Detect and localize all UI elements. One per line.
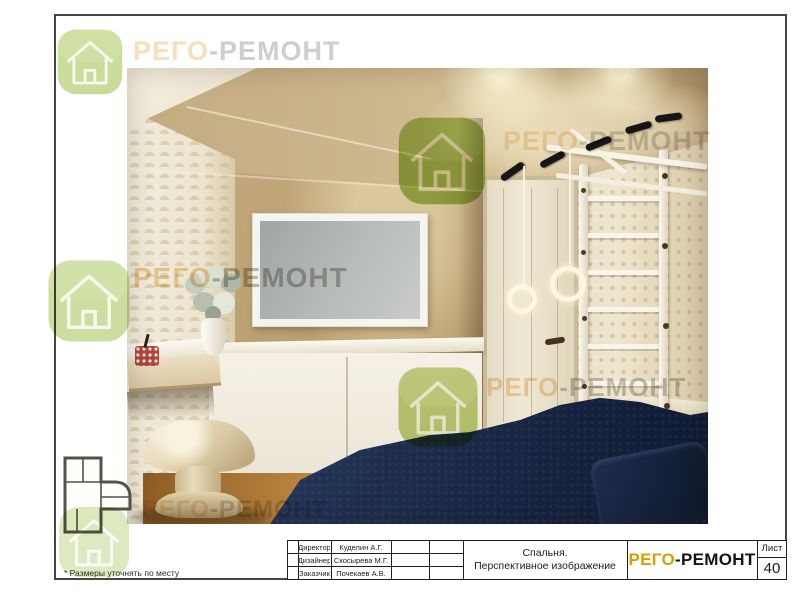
sheet-title-line2: Перспективное изображение xyxy=(474,560,616,573)
wall-picture xyxy=(252,213,428,327)
ring-strap xyxy=(569,152,571,268)
ring-strap xyxy=(523,166,525,286)
titleblock-line xyxy=(429,541,430,579)
pencil-cup xyxy=(135,346,159,366)
watermark-text-part2: -РЕМОНТ xyxy=(209,36,341,66)
door-panel-line xyxy=(557,188,558,422)
watermark-text: РЕГО-РЕМОНТ xyxy=(133,36,340,67)
sheet-label: Лист xyxy=(758,541,786,556)
company-logo-part1: РЕГО xyxy=(629,550,676,570)
wallbars-bolts xyxy=(581,188,586,193)
person-name: Скосырева М.Г. xyxy=(332,554,390,566)
title-block: Директор Дизайнер Заказчик Куделин А.Г. … xyxy=(287,540,787,580)
titleblock-line xyxy=(391,541,392,579)
sheet-title: Спальня. Перспективное изображение xyxy=(464,541,626,579)
wallbars-bolts xyxy=(662,173,668,179)
floorplan-thumbnail xyxy=(57,452,139,538)
door-panel-line xyxy=(503,188,504,422)
pouf-seat xyxy=(143,420,255,472)
sheet-title-line1: Спальня. xyxy=(522,547,567,560)
vanity-desk-shadow xyxy=(127,386,215,422)
role-label: Заказчик xyxy=(299,567,330,579)
role-label: Директор xyxy=(299,541,330,553)
role-label: Дизайнер xyxy=(299,554,330,566)
footnote: * Размеры уточнять по месту xyxy=(64,568,179,578)
door-handle xyxy=(545,336,566,345)
watermark-text-part1: РЕГО xyxy=(133,36,209,66)
person-name: Почекаев А.В. xyxy=(332,567,390,579)
bedroom-render-image xyxy=(127,68,708,524)
house-logo-icon xyxy=(55,26,125,98)
gymnastic-ring xyxy=(550,266,586,302)
pouf-base xyxy=(155,492,243,518)
floorplan-outline xyxy=(65,458,130,532)
gymnastic-ring xyxy=(507,284,537,314)
drawing-sheet: РЕГО-РЕМОНТ РЕГО-РЕМОНТ РЕГО-РЕМОНТ РЕГО… xyxy=(0,0,800,600)
person-name: Куделин А.Г. xyxy=(332,541,390,553)
house-logo-icon xyxy=(45,256,133,346)
sheet-number: 40 xyxy=(758,558,786,579)
flower xyxy=(221,274,241,292)
company-logo: РЕГО-РЕМОНТ xyxy=(628,541,756,579)
picture-canvas xyxy=(260,221,420,319)
company-logo-part2: -РЕМОНТ xyxy=(675,550,755,570)
